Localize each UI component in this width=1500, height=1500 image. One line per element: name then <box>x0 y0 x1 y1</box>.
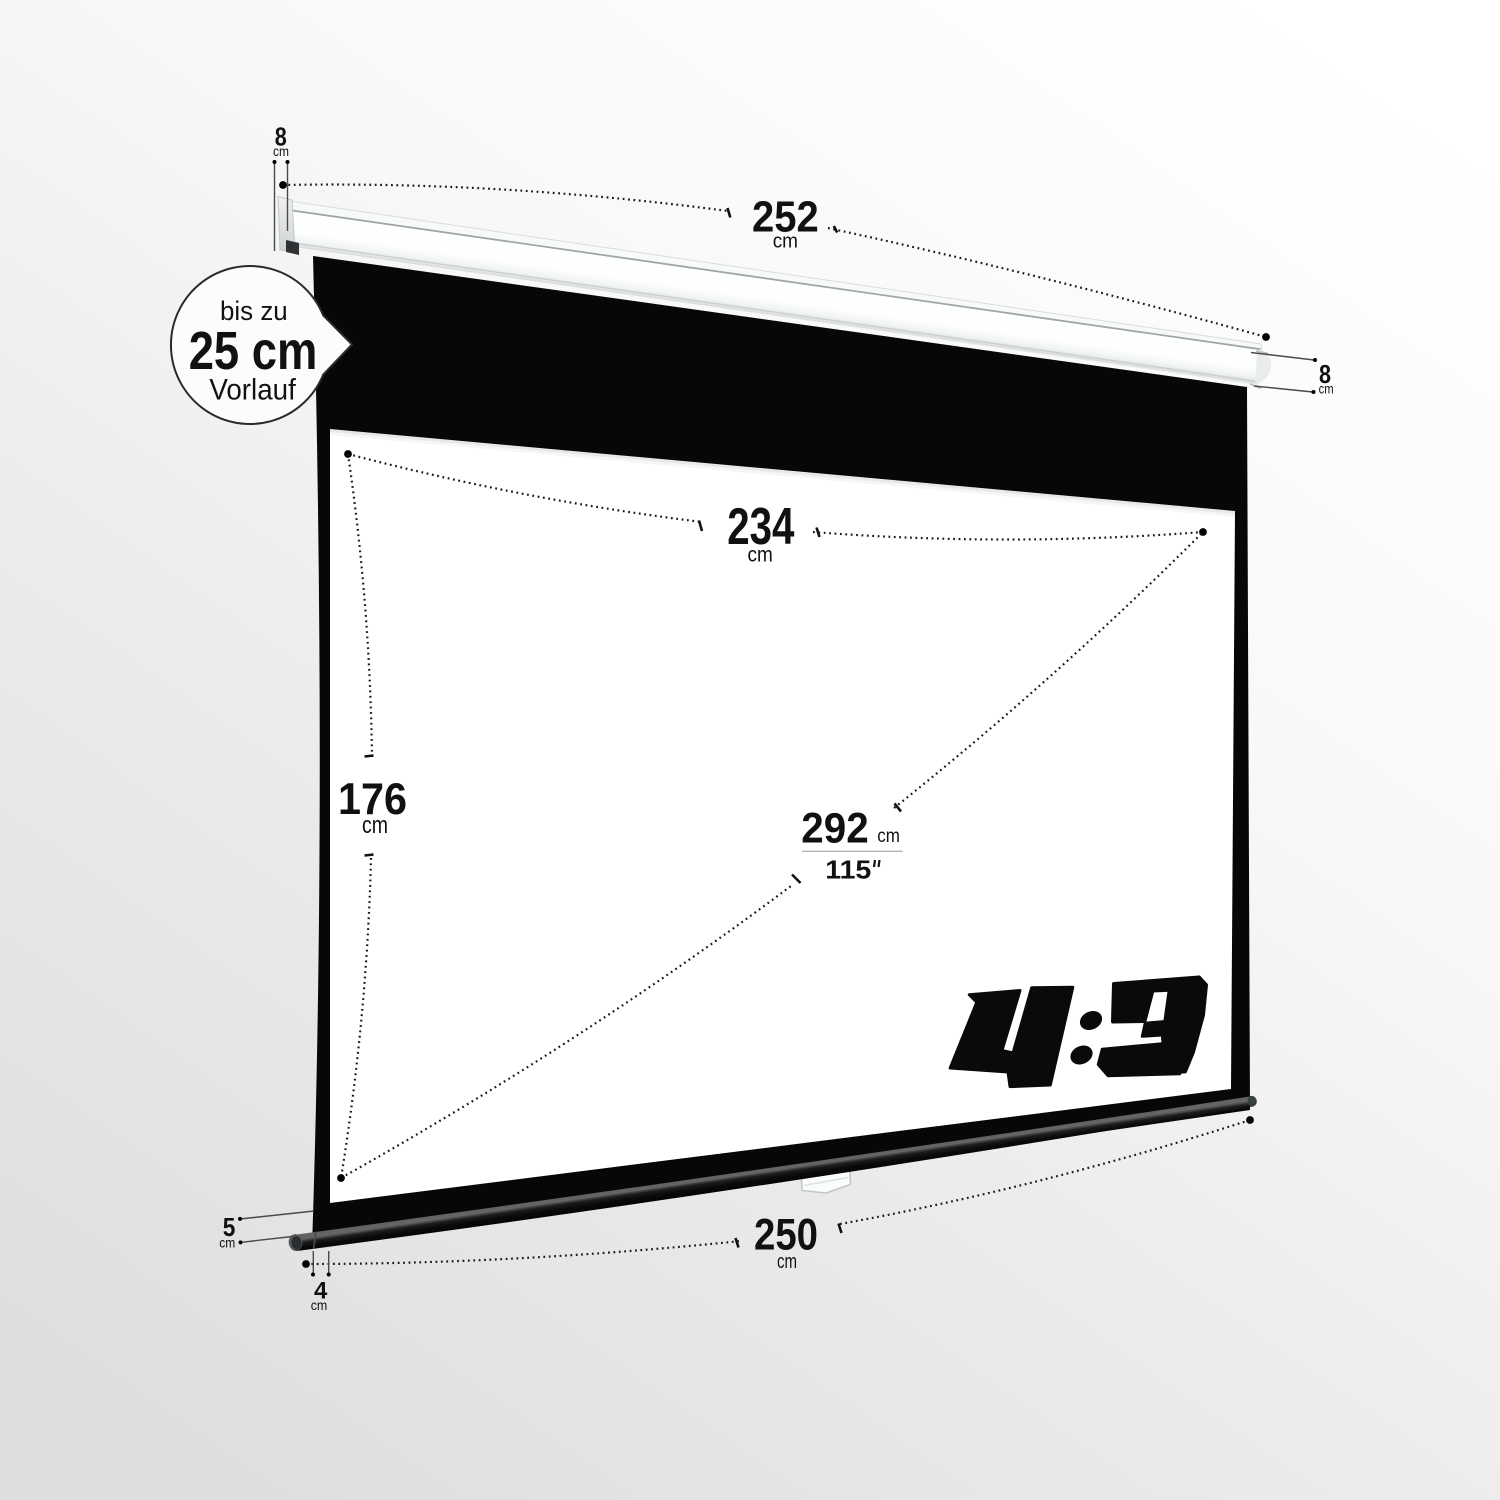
svg-text:cm: cm <box>362 812 388 839</box>
svg-text:cm: cm <box>877 826 900 847</box>
svg-text:25 cm: 25 cm <box>189 322 318 381</box>
svg-text:cm: cm <box>1319 380 1334 396</box>
svg-text:115: 115 <box>825 855 871 885</box>
svg-text:cm: cm <box>273 143 289 159</box>
svg-text:cm: cm <box>773 229 798 252</box>
svg-text:cm: cm <box>311 1297 328 1313</box>
svg-text:cm: cm <box>777 1250 797 1273</box>
svg-text:cm: cm <box>219 1234 235 1250</box>
svg-text:292: 292 <box>801 805 868 853</box>
svg-text:Vorlauf: Vorlauf <box>209 373 296 406</box>
svg-text:cm: cm <box>748 543 773 567</box>
